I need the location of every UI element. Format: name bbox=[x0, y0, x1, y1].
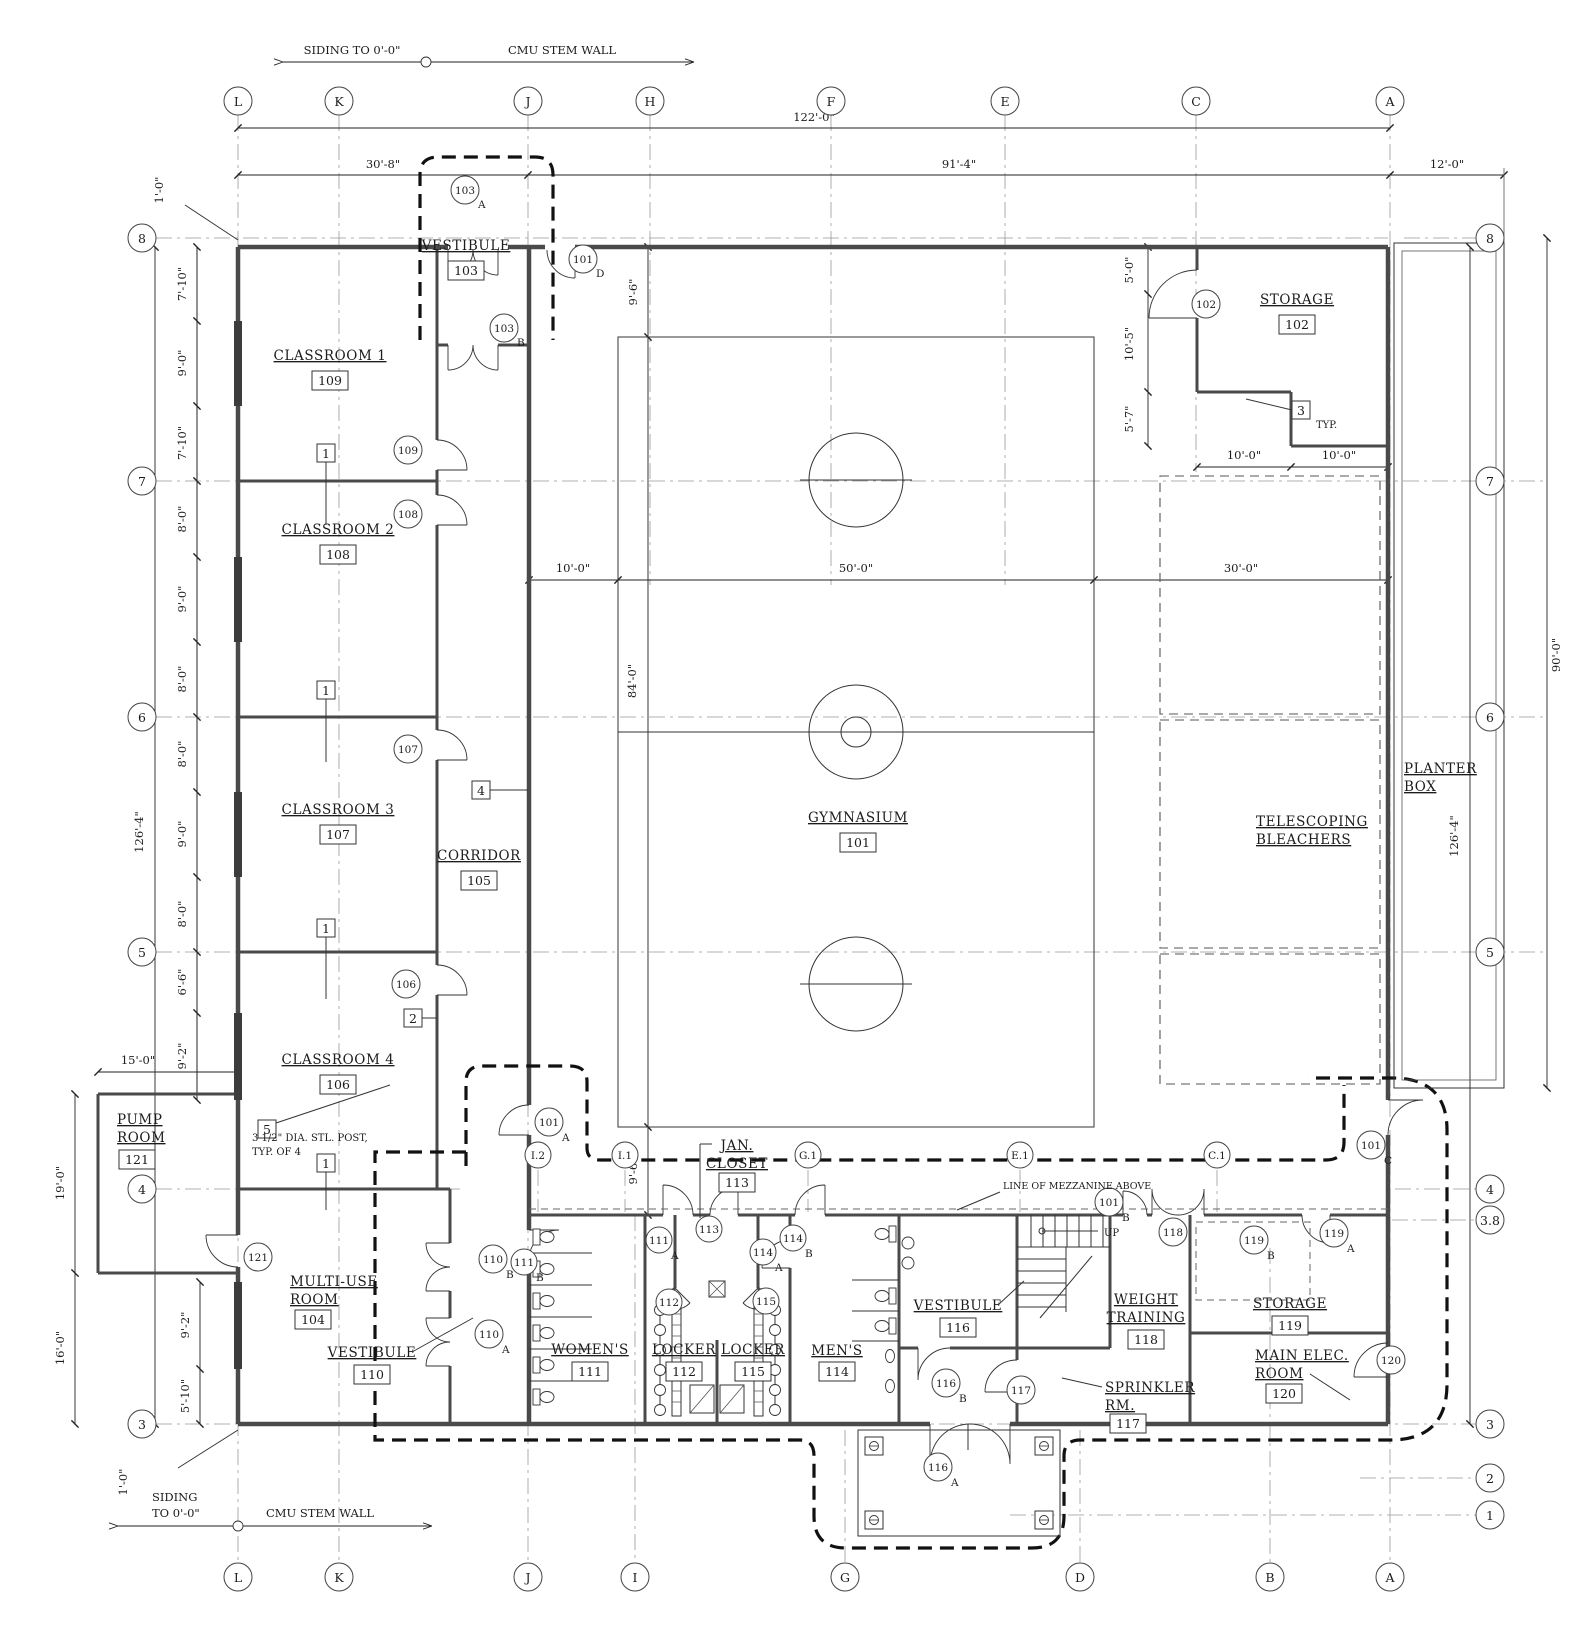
svg-text:114: 114 bbox=[753, 1247, 773, 1259]
dim-left-9: 6'-6" bbox=[175, 969, 189, 996]
svg-text:101: 101 bbox=[573, 254, 593, 266]
dim-top-planter: 12'-0" bbox=[1430, 157, 1464, 171]
grid-bubble-top-H: H bbox=[636, 87, 664, 115]
grid-bubble-top-J: J bbox=[514, 87, 542, 115]
svg-text:118: 118 bbox=[1163, 1227, 1183, 1239]
room-number-118: 118 bbox=[1134, 1332, 1158, 1347]
svg-text:B: B bbox=[536, 1272, 544, 1284]
dim-left-3: 8'-0" bbox=[175, 506, 189, 533]
svg-text:A: A bbox=[670, 1250, 679, 1262]
room-number-116: 116 bbox=[946, 1320, 970, 1335]
door-tag-101D: 101D bbox=[569, 245, 604, 280]
grid-bubble-top-K: K bbox=[325, 87, 353, 115]
svg-text:E.1: E.1 bbox=[1011, 1150, 1029, 1162]
svg-text:111: 111 bbox=[649, 1235, 669, 1247]
svg-text:3: 3 bbox=[1486, 1417, 1494, 1432]
room-number-109: 109 bbox=[318, 373, 342, 388]
grid-bubble-bottom-B: B bbox=[1256, 1563, 1284, 1591]
door-tag-116A: 116A bbox=[924, 1453, 959, 1489]
door-tag-106: 106 bbox=[392, 970, 420, 998]
grid-bubble-bottom-D: D bbox=[1066, 1563, 1094, 1591]
svg-text:D: D bbox=[596, 268, 604, 280]
door-tag-101B: 101B bbox=[1095, 1188, 1130, 1224]
grid-bubble-I1: I.1 bbox=[612, 1142, 638, 1168]
room-number-104: 104 bbox=[301, 1312, 325, 1327]
room-number-111: 111 bbox=[578, 1364, 602, 1379]
siding-label-bottom-1: SIDING bbox=[152, 1490, 197, 1504]
svg-text:119: 119 bbox=[1244, 1235, 1264, 1247]
siding-label-top: SIDING TO 0'-0" bbox=[304, 43, 401, 57]
dim-storage-c1: 5'-0" bbox=[1122, 257, 1136, 284]
door-tag-101A: 101A bbox=[535, 1108, 570, 1144]
room-label-storage-102: STORAGE bbox=[1260, 292, 1334, 308]
room-label-jan-1: JAN. bbox=[719, 1138, 754, 1154]
svg-text:A: A bbox=[1346, 1243, 1355, 1255]
grid-bubble-right-3.8: 3.8 bbox=[1476, 1206, 1504, 1234]
grid-bubble-top-C: C bbox=[1182, 87, 1210, 115]
keynote-1a: 1 bbox=[317, 444, 335, 525]
svg-text:121: 121 bbox=[248, 1252, 268, 1264]
door-swings bbox=[206, 250, 1423, 1464]
svg-text:A: A bbox=[561, 1132, 570, 1144]
dim-storage-w2: 10'-0" bbox=[1322, 448, 1356, 462]
svg-text:101: 101 bbox=[1099, 1197, 1119, 1209]
door-tag-103A: 103A bbox=[451, 176, 486, 211]
svg-text:K: K bbox=[334, 1570, 344, 1585]
room-number-114: 114 bbox=[825, 1364, 849, 1379]
svg-text:A: A bbox=[950, 1477, 959, 1489]
svg-text:H: H bbox=[645, 94, 656, 109]
room-label-jan-2: CLOSET bbox=[706, 1156, 768, 1172]
room-label-corridor: CORRIDOR bbox=[437, 848, 521, 864]
grid-bubble-left-3: 3 bbox=[128, 1410, 156, 1438]
entry-stoop bbox=[858, 1424, 1060, 1536]
grid-bubble-bottom-A: A bbox=[1376, 1563, 1404, 1591]
dim-storage-c3: 5'-7" bbox=[1122, 406, 1136, 433]
svg-text:C.1: C.1 bbox=[1208, 1150, 1226, 1162]
room-label-mainelec-1: MAIN ELEC. bbox=[1255, 1348, 1349, 1364]
door-tag-113: 113 bbox=[696, 1216, 722, 1242]
svg-text:B: B bbox=[506, 1269, 514, 1281]
stairs-up-label: UP bbox=[1104, 1228, 1119, 1239]
svg-text:1: 1 bbox=[322, 683, 330, 698]
svg-text:A: A bbox=[1384, 1570, 1395, 1585]
svg-text:I.2: I.2 bbox=[531, 1150, 545, 1162]
room-label-mens: MEN'S bbox=[811, 1343, 862, 1359]
room-label-weight-2: TRAINING bbox=[1107, 1310, 1186, 1326]
room-number-102: 102 bbox=[1285, 317, 1309, 332]
room-label-womens: WOMEN'S bbox=[551, 1342, 629, 1358]
grid-bubble-bottom-L: L bbox=[224, 1563, 252, 1591]
svg-text:113: 113 bbox=[699, 1224, 719, 1236]
svg-text:6: 6 bbox=[138, 710, 146, 725]
svg-text:107: 107 bbox=[398, 744, 418, 756]
svg-text:1: 1 bbox=[322, 921, 330, 936]
svg-text:4: 4 bbox=[477, 783, 485, 798]
dim-court-left: 10'-0" bbox=[556, 561, 590, 575]
basketball-court bbox=[618, 337, 1094, 1127]
dim-right-overall: 126'-4" bbox=[1447, 815, 1461, 857]
dim-mu-win1: 9'-2" bbox=[178, 1312, 192, 1339]
post-note-2: TYP. OF 4 bbox=[252, 1147, 301, 1158]
svg-text:7: 7 bbox=[138, 474, 146, 489]
grid-bubble-C1: C.1 bbox=[1204, 1142, 1230, 1168]
svg-text:3: 3 bbox=[1297, 403, 1305, 418]
room-label-sprinkler-1: SPRINKLER bbox=[1105, 1380, 1195, 1396]
door-tag-110B: 110B bbox=[479, 1245, 514, 1281]
svg-text:103: 103 bbox=[494, 323, 514, 335]
door-tag-121: 121 bbox=[244, 1243, 272, 1271]
svg-text:C: C bbox=[1384, 1155, 1392, 1167]
svg-text:101: 101 bbox=[1361, 1140, 1381, 1152]
grid-bubble-left-7: 7 bbox=[128, 467, 156, 495]
room-label-vestibule-116: VESTIBULE bbox=[913, 1298, 1003, 1314]
svg-text:112: 112 bbox=[659, 1297, 679, 1309]
room-label-gymnasium: GYMNASIUM bbox=[808, 810, 908, 826]
svg-text:2: 2 bbox=[409, 1011, 417, 1026]
grid-bubble-left-5: 5 bbox=[128, 938, 156, 966]
room-label-sprinkler-2: RM. bbox=[1105, 1398, 1135, 1414]
mezzanine-label: LINE OF MEZZANINE ABOVE bbox=[1003, 1181, 1151, 1192]
floor-plan-drawing: 122'-0" 30'-8" 91'-4" 12'-0" 7'-10" 9'-0… bbox=[0, 0, 1595, 1628]
post-note-1: 3 1/2" DIA. STL. POST, bbox=[252, 1133, 368, 1144]
svg-text:A: A bbox=[501, 1344, 510, 1356]
grid-bubble-E1: E.1 bbox=[1007, 1142, 1033, 1168]
svg-text:2: 2 bbox=[1486, 1471, 1494, 1486]
svg-text:B: B bbox=[1122, 1212, 1130, 1224]
door-tag-102: 102 bbox=[1192, 290, 1220, 318]
keynote-2: 2 bbox=[404, 1009, 437, 1027]
dim-court-width: 50'-0" bbox=[839, 561, 873, 575]
grid-bubble-top-L: L bbox=[224, 87, 252, 115]
svg-text:E: E bbox=[1000, 94, 1009, 109]
grid-bubble-right-1: 1 bbox=[1476, 1501, 1504, 1529]
door-tag-114B: 114B bbox=[780, 1225, 813, 1260]
svg-text:116: 116 bbox=[936, 1378, 956, 1390]
svg-text:I: I bbox=[633, 1570, 638, 1585]
door-tag-108: 108 bbox=[394, 500, 422, 528]
grid-bubble-top-A: A bbox=[1376, 87, 1404, 115]
dim-one-top: 1'-0" bbox=[152, 177, 166, 204]
svg-text:109: 109 bbox=[398, 445, 418, 457]
door-tag-107: 107 bbox=[394, 735, 422, 763]
svg-text:117: 117 bbox=[1011, 1385, 1031, 1397]
keynote-1b: 1 bbox=[317, 681, 335, 762]
keynote-1d: 1 bbox=[317, 1154, 335, 1210]
dim-court-right: 30'-0" bbox=[1224, 561, 1258, 575]
door-tag-118: 118 bbox=[1159, 1218, 1187, 1246]
svg-text:111: 111 bbox=[514, 1257, 534, 1269]
svg-text:B: B bbox=[959, 1393, 967, 1405]
dim-pump-width: 15'-0" bbox=[121, 1053, 155, 1067]
grid-bubble-bottom-G: G bbox=[831, 1563, 859, 1591]
svg-text:J: J bbox=[523, 94, 530, 109]
svg-text:4: 4 bbox=[1486, 1182, 1494, 1197]
dim-left-4: 9'-0" bbox=[175, 586, 189, 613]
grid-bubble-bottom-K: K bbox=[325, 1563, 353, 1591]
svg-text:B: B bbox=[1267, 1250, 1275, 1262]
svg-text:5: 5 bbox=[138, 945, 146, 960]
room-label-locker-115: LOCKER bbox=[721, 1342, 785, 1358]
siding-label-bottom-2: TO 0'-0" bbox=[152, 1506, 200, 1520]
room-number-101: 101 bbox=[846, 835, 870, 850]
grid-bubble-bottom-I: I bbox=[621, 1563, 649, 1591]
door-tag-110A: 110A bbox=[475, 1320, 510, 1356]
floor-plan-sheet: 122'-0" 30'-8" 91'-4" 12'-0" 7'-10" 9'-0… bbox=[0, 0, 1595, 1628]
room-label-bleachers-2: BLEACHERS bbox=[1256, 832, 1351, 848]
dim-left-7: 9'-0" bbox=[175, 821, 189, 848]
room-label-multiuse-1: MULTI-USE bbox=[290, 1274, 378, 1290]
svg-text:3.8: 3.8 bbox=[1480, 1213, 1500, 1228]
room-label-multiuse-2: ROOM bbox=[290, 1292, 339, 1308]
mezzanine-dashed-lines bbox=[529, 1209, 1388, 1300]
dim-left-2: 7'-10" bbox=[175, 426, 189, 460]
grid-bubble-G1: G.1 bbox=[795, 1142, 821, 1168]
dim-left-10: 9'-2" bbox=[175, 1043, 189, 1070]
room-number-113: 113 bbox=[725, 1175, 749, 1190]
door-tag-116B: 116B bbox=[932, 1369, 967, 1405]
room-number-121: 121 bbox=[125, 1152, 149, 1167]
svg-text:7: 7 bbox=[1486, 474, 1494, 489]
grid-bubble-right-5: 5 bbox=[1476, 938, 1504, 966]
room-number-105: 105 bbox=[467, 873, 491, 888]
svg-text:120: 120 bbox=[1381, 1355, 1401, 1367]
svg-text:A: A bbox=[477, 199, 486, 211]
grid-bubble-left-8: 8 bbox=[128, 224, 156, 252]
svg-text:J: J bbox=[523, 1570, 530, 1585]
dim-right-height: 90'-0" bbox=[1549, 638, 1563, 672]
svg-text:A: A bbox=[774, 1262, 783, 1274]
dim-gym-margin-top: 9'-6" bbox=[626, 279, 640, 306]
room-label-weight-1: WEIGHT bbox=[1114, 1292, 1178, 1308]
svg-text:1: 1 bbox=[322, 1156, 330, 1171]
room-number-119: 119 bbox=[1278, 1318, 1302, 1333]
svg-text:C: C bbox=[1191, 94, 1201, 109]
door-tag-114A: 114A bbox=[750, 1239, 783, 1274]
room-label-classroom-4: CLASSROOM 4 bbox=[282, 1052, 395, 1068]
room-number-107: 107 bbox=[326, 827, 350, 842]
svg-text:3: 3 bbox=[138, 1417, 146, 1432]
svg-text:108: 108 bbox=[398, 509, 418, 521]
svg-text:8: 8 bbox=[138, 231, 146, 246]
dim-storage-w1: 10'-0" bbox=[1227, 448, 1261, 462]
svg-text:115: 115 bbox=[756, 1296, 776, 1308]
telescoping-bleachers bbox=[1160, 476, 1380, 1084]
stairs: UP bbox=[1017, 1215, 1119, 1318]
svg-text:106: 106 bbox=[396, 979, 416, 991]
svg-text:D: D bbox=[1075, 1570, 1085, 1585]
room-label-pump-2: ROOM bbox=[117, 1130, 166, 1146]
dim-top-right: 91'-4" bbox=[942, 157, 976, 171]
room-number-112: 112 bbox=[672, 1364, 696, 1379]
svg-text:103: 103 bbox=[455, 185, 475, 197]
grid-bubble-top-F: F bbox=[817, 87, 845, 115]
svg-text:I.1: I.1 bbox=[618, 1150, 632, 1162]
dim-left-8: 8'-0" bbox=[175, 901, 189, 928]
svg-text:1: 1 bbox=[322, 446, 330, 461]
room-label-mainelec-2: ROOM bbox=[1255, 1366, 1304, 1382]
door-tag-119B: 119B bbox=[1240, 1226, 1275, 1262]
svg-text:119: 119 bbox=[1324, 1228, 1344, 1240]
grid-bubble-left-6: 6 bbox=[128, 703, 156, 731]
cmu-label-top: CMU STEM WALL bbox=[508, 43, 616, 57]
svg-text:5: 5 bbox=[1486, 945, 1494, 960]
room-number-115: 115 bbox=[741, 1364, 765, 1379]
svg-text:B: B bbox=[517, 337, 525, 349]
dim-mu-win2: 5'-10" bbox=[178, 1379, 192, 1413]
room-label-vestibule-110: VESTIBULE bbox=[327, 1345, 417, 1361]
dim-one-bottom: 1'-0" bbox=[116, 1469, 130, 1496]
dimensions: 122'-0" 30'-8" 91'-4" 12'-0" 7'-10" 9'-0… bbox=[53, 110, 1563, 1495]
grid-bubble-right-8: 8 bbox=[1476, 224, 1504, 252]
door-tag-120: 120 bbox=[1377, 1346, 1405, 1374]
svg-text:B: B bbox=[805, 1248, 813, 1260]
svg-text:6: 6 bbox=[1486, 710, 1494, 725]
grid-bubble-I2: I.2 bbox=[525, 1142, 551, 1168]
room-label-classroom-1: CLASSROOM 1 bbox=[274, 348, 387, 364]
grid-bubble-right-7: 7 bbox=[1476, 467, 1504, 495]
room-number-106: 106 bbox=[326, 1077, 350, 1092]
svg-text:110: 110 bbox=[483, 1254, 503, 1266]
svg-text:116: 116 bbox=[928, 1462, 948, 1474]
room-label-vestibule-103: VESTIBULE bbox=[421, 238, 511, 254]
grid-bubble-right-6: 6 bbox=[1476, 703, 1504, 731]
room-label-planter-1: PLANTER bbox=[1404, 761, 1477, 777]
svg-text:A: A bbox=[1384, 94, 1395, 109]
dim-below-pump: 16'-0" bbox=[53, 1331, 67, 1365]
dim-top-left: 30'-8" bbox=[366, 157, 400, 171]
dim-left-0: 7'-10" bbox=[175, 267, 189, 301]
room-number-117: 117 bbox=[1116, 1416, 1140, 1431]
grid-bubble-top-E: E bbox=[991, 87, 1019, 115]
room-label-classroom-2: CLASSROOM 2 bbox=[282, 522, 395, 538]
walls bbox=[98, 247, 1388, 1424]
room-number-108: 108 bbox=[326, 547, 350, 562]
room-label-bleachers-1: TELESCOPING bbox=[1256, 814, 1368, 830]
door-tag-109: 109 bbox=[394, 436, 422, 464]
svg-text:L: L bbox=[234, 1570, 242, 1585]
grid-bubble-left-4: 4 bbox=[128, 1175, 156, 1203]
room-label-pump-1: PUMP bbox=[117, 1112, 163, 1128]
svg-text:4: 4 bbox=[138, 1182, 146, 1197]
dim-left-5: 8'-0" bbox=[175, 666, 189, 693]
keynote-1c: 1 bbox=[317, 919, 335, 999]
room-number-103: 103 bbox=[454, 263, 478, 278]
dim-court-height: 84'-0" bbox=[625, 664, 639, 698]
room-number-120: 120 bbox=[1272, 1386, 1296, 1401]
svg-text:1: 1 bbox=[1486, 1508, 1494, 1523]
door-tag-119A: 119A bbox=[1320, 1219, 1355, 1255]
dim-left-6: 8'-0" bbox=[175, 741, 189, 768]
keynote-3-typ: TYP. bbox=[1316, 420, 1337, 431]
room-label-storage-119: STORAGE bbox=[1253, 1296, 1327, 1312]
door-tag-115: 115 bbox=[753, 1288, 779, 1314]
grid-bubble-right-3: 3 bbox=[1476, 1410, 1504, 1438]
svg-text:L: L bbox=[234, 94, 242, 109]
svg-text:K: K bbox=[334, 94, 344, 109]
svg-text:114: 114 bbox=[783, 1233, 803, 1245]
door-tag-117: 117 bbox=[1007, 1376, 1035, 1404]
svg-text:101: 101 bbox=[539, 1117, 559, 1129]
cmu-label-bottom: CMU STEM WALL bbox=[266, 1506, 374, 1520]
grid-bubble-bottom-J: J bbox=[514, 1563, 542, 1591]
grid-bubble-right-2: 2 bbox=[1476, 1464, 1504, 1492]
door-tags: 103A 103B 101D 102 109 108 107 106 101A … bbox=[244, 176, 1405, 1489]
svg-text:G.1: G.1 bbox=[799, 1150, 817, 1162]
room-number-110: 110 bbox=[360, 1367, 384, 1382]
dim-left-1: 9'-0" bbox=[175, 350, 189, 377]
svg-text:102: 102 bbox=[1196, 299, 1216, 311]
svg-text:8: 8 bbox=[1486, 231, 1494, 246]
dim-pump-height: 19'-0" bbox=[53, 1166, 67, 1200]
svg-text:110: 110 bbox=[479, 1329, 499, 1341]
room-label-classroom-3: CLASSROOM 3 bbox=[282, 802, 395, 818]
dim-left-overall: 126'-4" bbox=[132, 811, 146, 853]
room-label-locker-112: LOCKER bbox=[652, 1342, 716, 1358]
dim-storage-c2: 10'-5" bbox=[1122, 327, 1136, 361]
svg-text:F: F bbox=[827, 94, 836, 109]
svg-text:B: B bbox=[1265, 1570, 1274, 1585]
door-tag-112: 112 bbox=[656, 1289, 682, 1315]
room-label-planter-2: BOX bbox=[1404, 779, 1436, 795]
svg-text:G: G bbox=[840, 1570, 850, 1585]
keynote-4: 4 bbox=[472, 781, 528, 799]
wall-type-annotations: SIDING TO 0'-0" CMU STEM WALL SIDING TO … bbox=[118, 43, 694, 1531]
grid-bubble-right-4: 4 bbox=[1476, 1175, 1504, 1203]
